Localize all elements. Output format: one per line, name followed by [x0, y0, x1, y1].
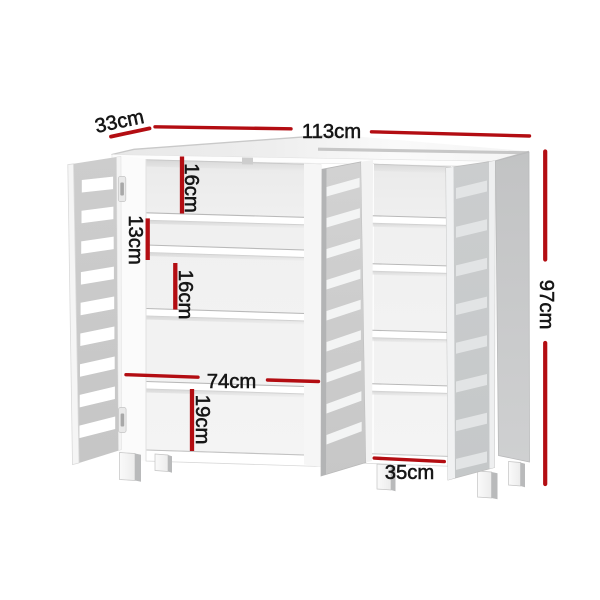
svg-text:35cm: 35cm [385, 462, 435, 484]
svg-text:13cm: 13cm [124, 215, 146, 265]
svg-text:16cm: 16cm [180, 163, 202, 213]
svg-text:97cm: 97cm [535, 280, 557, 330]
svg-text:16cm: 16cm [174, 270, 196, 320]
svg-text:113cm: 113cm [302, 121, 361, 143]
svg-text:74cm: 74cm [207, 371, 257, 393]
svg-text:19cm: 19cm [191, 395, 213, 445]
